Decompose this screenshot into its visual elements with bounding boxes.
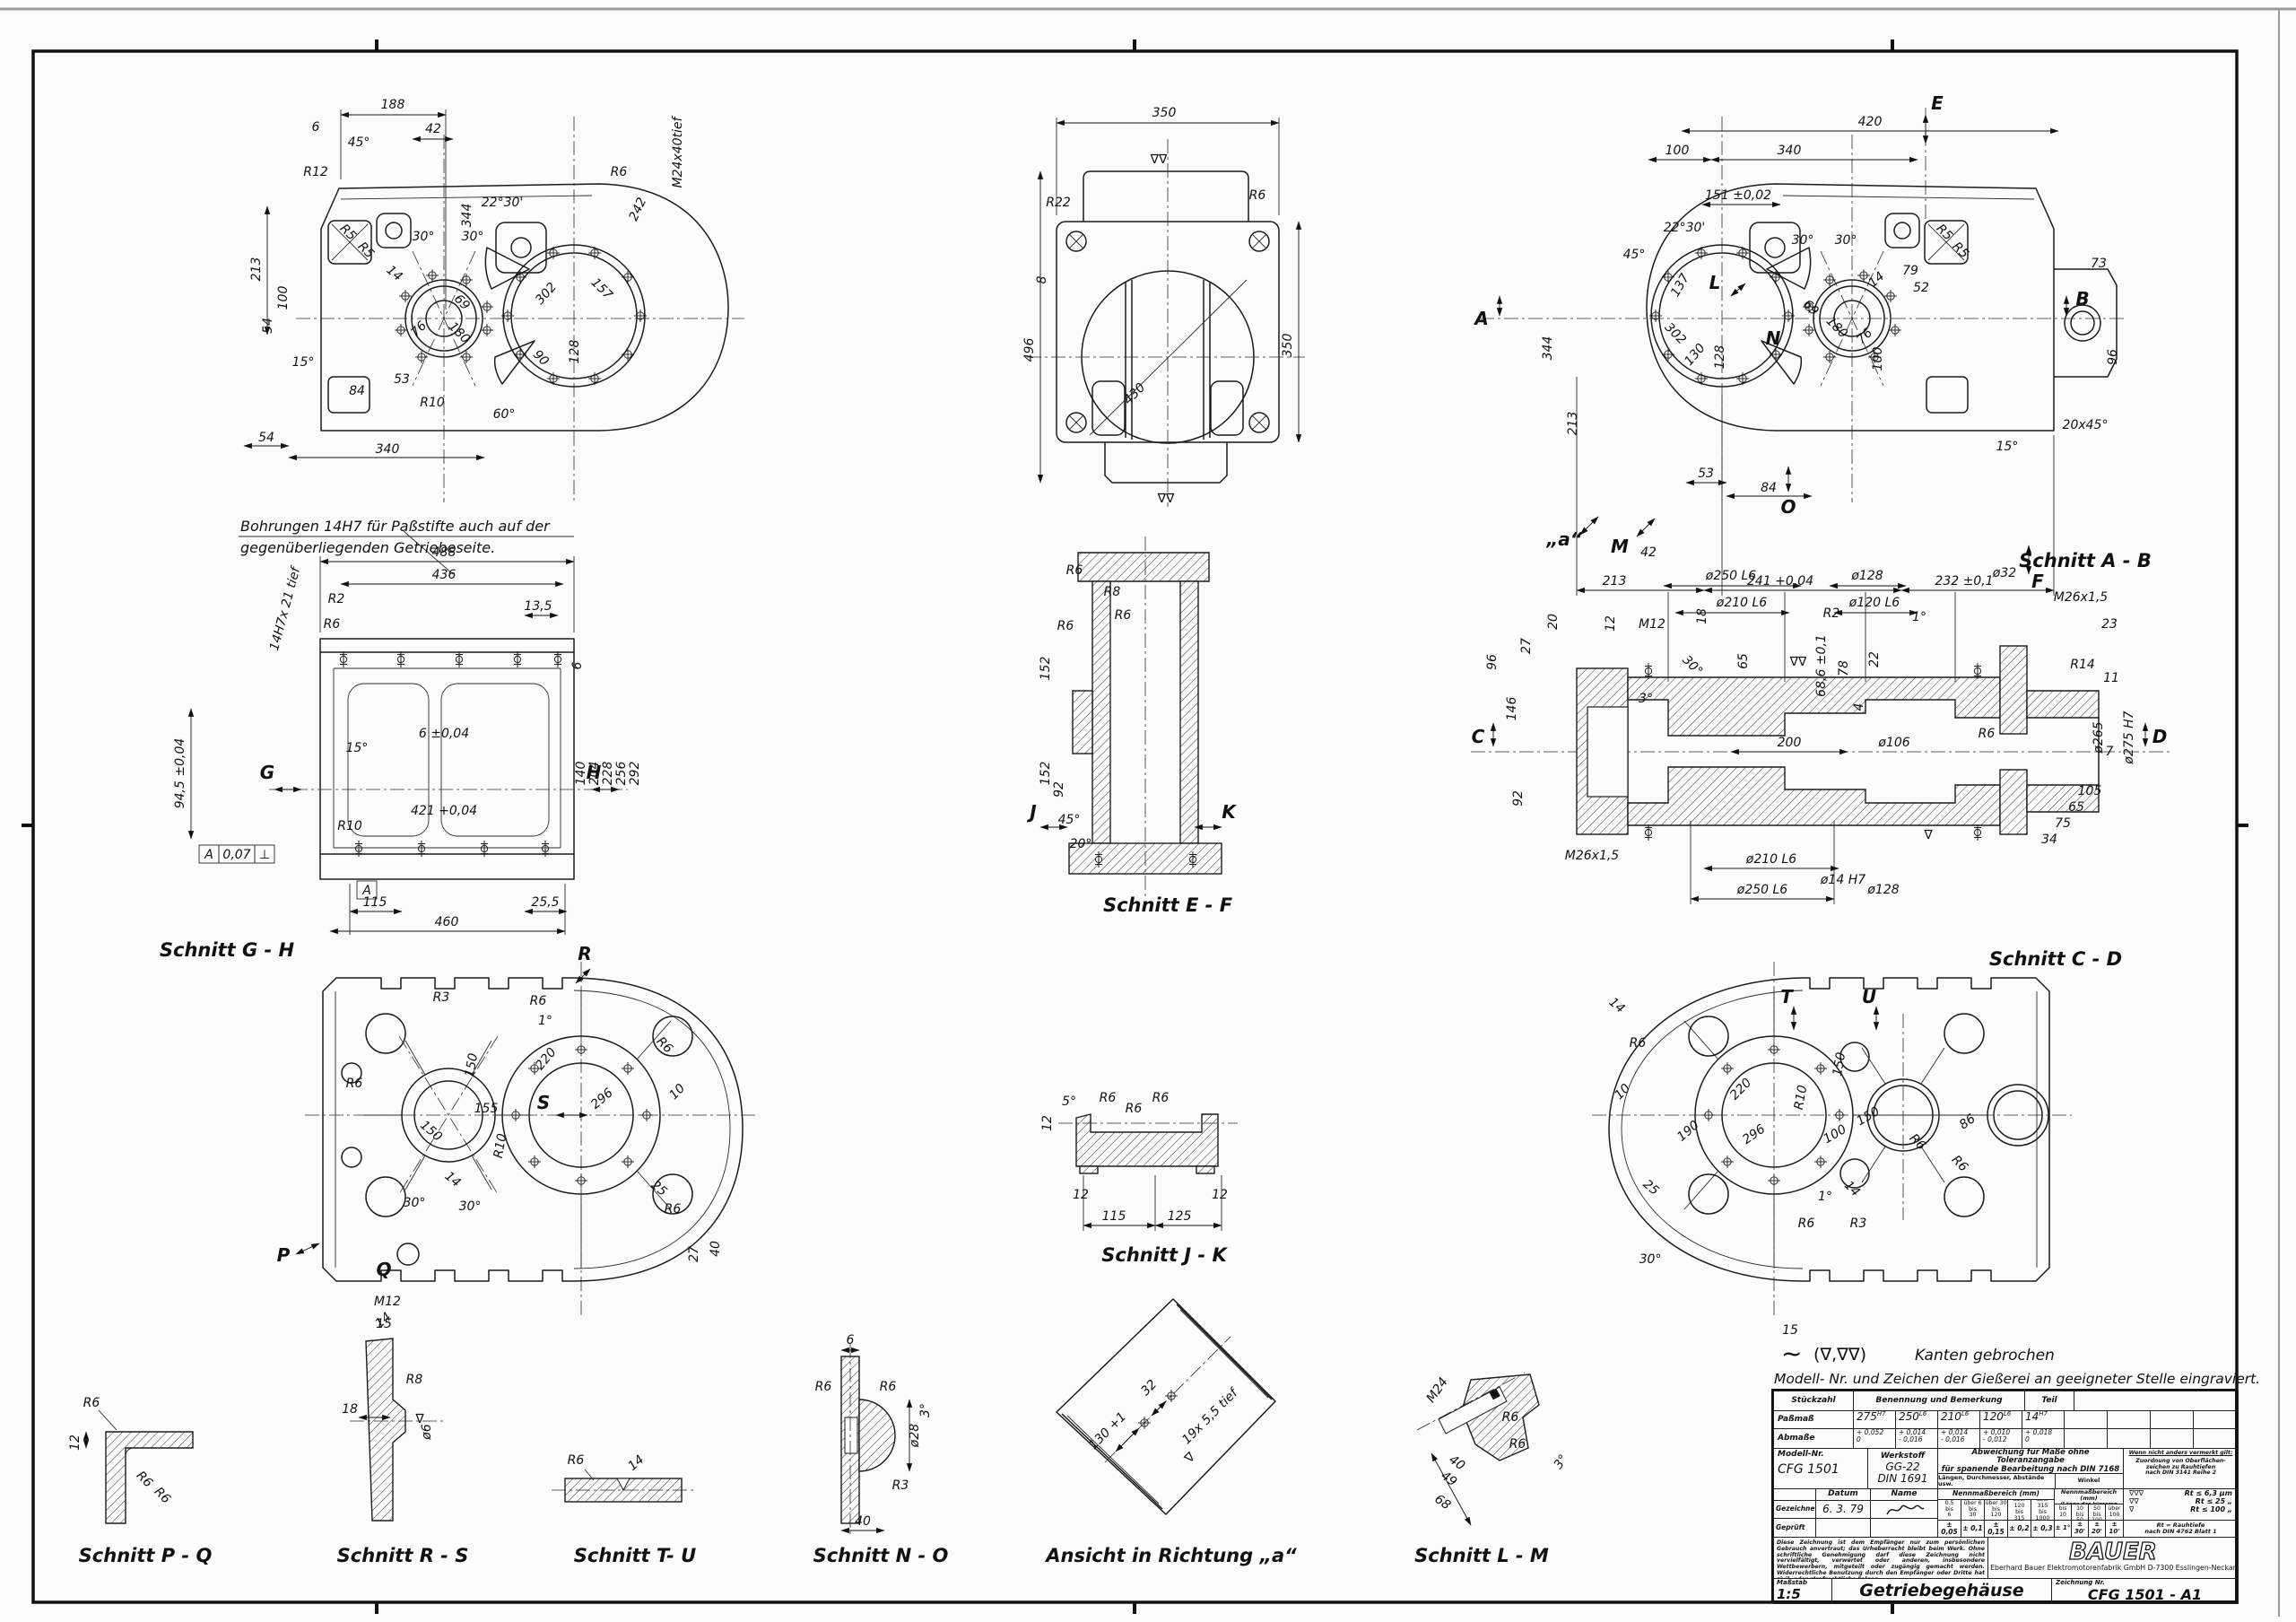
dim-label: R6	[152, 1485, 174, 1507]
section-letter-C: C	[1472, 726, 1485, 747]
dim-label: 130	[1682, 341, 1708, 369]
dim-label: 3°	[918, 1403, 933, 1417]
dim-label: 12	[1212, 1188, 1228, 1202]
section-letter-B: B	[2075, 288, 2089, 310]
dim-label: R6	[611, 165, 628, 179]
dim-label: 30°	[1792, 233, 1814, 248]
ang-header1: Nennmaßbereich (mm)	[2055, 1489, 2123, 1502]
dim-label: 30°	[459, 1199, 482, 1214]
dim-label: 18	[1695, 608, 1709, 624]
surface-mark: ∇∇	[1157, 492, 1175, 506]
dim-label: R6	[1057, 619, 1074, 633]
fit-tol: L6	[2004, 1410, 2011, 1417]
dim-label: R14	[2070, 658, 2095, 672]
dim-label: 100	[1665, 144, 1690, 158]
ang-tol: ± 10'	[2105, 1520, 2124, 1538]
massstab-cell: Maßstab 1:5	[1773, 1578, 1832, 1604]
dim-label: M26x1,5	[2054, 590, 2109, 605]
dim-label: 94,5 ±0,04	[173, 738, 187, 809]
dim-label: R3	[892, 1478, 909, 1493]
dim-label: 30°	[413, 230, 435, 244]
dim-label: R22	[1046, 196, 1071, 210]
dim-label: 6 ±0,04	[419, 727, 469, 741]
dim-label: 30°	[462, 230, 484, 244]
dim-label: R5	[1934, 222, 1956, 244]
gezeichnet-label: Gezeichnet	[1773, 1500, 1816, 1519]
tolerance-value: 0,07	[222, 848, 250, 862]
section-letter-P: P	[277, 1244, 291, 1266]
dim-label: 3°	[1639, 692, 1653, 706]
benennung-header: Benennung und Bemerkung	[1853, 1391, 2025, 1411]
view-end: 350 496 350 430 R22 R6 8 ∇∇ ∇∇	[1022, 106, 1305, 507]
empty-cell	[2193, 1428, 2239, 1449]
dim-label: ø250 L6	[1736, 883, 1788, 897]
dim-label: 15°	[292, 355, 315, 370]
detail-no: 6 R6 R6 ø28 3° R3 40	[815, 1333, 933, 1536]
dim-label: ø265	[2092, 721, 2106, 754]
passmass-value: 250L6	[1895, 1410, 1938, 1429]
dim-label: 125	[1168, 1209, 1192, 1224]
dim-label: 7	[2106, 745, 2114, 759]
len-range: über 6 bis 30	[1961, 1499, 1985, 1521]
modell-number: CFG 1501	[1778, 1463, 1864, 1477]
dim-label: 242	[626, 196, 649, 223]
nennmass-ang-header: Nennmaßbereich (mm) (Länge des kürzeren …	[2054, 1488, 2124, 1504]
dim-label: 100	[1871, 347, 1885, 371]
dim-label: 115	[1102, 1209, 1126, 1224]
section-letter-J: J	[1026, 801, 1037, 823]
dim-label: R6	[1798, 1216, 1815, 1231]
surface-note-cell: Wenn nicht anders vermerkt gilt: Zuordnu…	[2123, 1448, 2239, 1489]
gezeichnet-date: 6. 3. 79	[1815, 1500, 1871, 1519]
empty-cell	[1773, 1488, 1816, 1501]
dim-label: 10	[666, 1081, 688, 1103]
dim-label: 100	[276, 286, 291, 310]
dim-label: R6	[1115, 608, 1132, 623]
dim-label: 92	[1511, 790, 1526, 807]
dim-label: 53	[1698, 467, 1714, 481]
label-schnitt-tu: Schnitt T- U	[574, 1545, 696, 1566]
dim-label: R10	[337, 819, 362, 833]
dim-label: R6	[1249, 188, 1266, 203]
dim-label: 45°	[348, 135, 370, 150]
signature	[1882, 1502, 1926, 1518]
ang-tol: ± 30'	[2071, 1520, 2089, 1538]
len-tol: ± 0,15	[1984, 1520, 2008, 1538]
logo-cell: BAUER Eberhard Bauer Elektromotorenfabri…	[1987, 1537, 2239, 1579]
dim-label: M24	[1424, 1375, 1451, 1406]
dim-label: 128	[1713, 345, 1727, 370]
drawing-number: CFG 1501 - A1	[2056, 1587, 2234, 1603]
dim-label: ø28	[908, 1424, 922, 1448]
abmasse-value: + 0,010- 0,012	[1979, 1428, 2022, 1449]
dim-label: R6	[530, 994, 547, 1008]
dim-label: R6	[1949, 1153, 1971, 1175]
dim-label: 4	[1852, 703, 1866, 711]
dim-label: 54	[261, 318, 275, 334]
label-schnitt-lm: Schnitt L - M	[1414, 1545, 1549, 1566]
dim-label: 78	[1837, 660, 1851, 676]
dim-label: 25,5	[531, 895, 559, 910]
dim-label: 12	[1073, 1188, 1089, 1202]
view-section-gh: R3 R6 1° 150 155 150 14 30° 30° R10 220 …	[277, 943, 758, 1331]
surface-mark: ∇	[1923, 828, 1933, 842]
dim-label: 25	[648, 1178, 670, 1199]
dim-label: 350	[1281, 334, 1295, 358]
dim-label: 65	[1736, 653, 1751, 669]
dim-label: M24x40tief	[671, 115, 685, 187]
fit-value: 210	[1941, 1410, 1961, 1423]
dim-label: ø120 L6	[1848, 596, 1900, 610]
dim-label: 228	[601, 762, 615, 786]
dim-label: 14	[1841, 1178, 1863, 1199]
werkstoff-value: GG-22	[1885, 1461, 1919, 1473]
dim-label: 344	[1541, 336, 1555, 361]
fit-tol: L6	[1919, 1410, 1926, 1417]
stueckzahl-header: Stückzahl	[1773, 1391, 1854, 1411]
surface-mark: ∇	[1181, 1450, 1198, 1467]
empty-cell	[2150, 1410, 2194, 1429]
dim-label: 13,5	[524, 599, 552, 614]
tilde-symbol: ~	[1781, 1339, 1802, 1368]
bauer-logo: BAUER	[1988, 1538, 2238, 1565]
dim-label: R2	[328, 592, 345, 606]
title-block: Stückzahl Benennung und Bemerkung Teil P…	[1771, 1389, 2237, 1602]
fit-tol: H7	[2039, 1410, 2048, 1417]
dim-label: R6	[665, 1202, 682, 1216]
dim-label: 14	[1865, 269, 1887, 291]
dim-label: 232 ±0,1	[1935, 574, 1993, 589]
ang-range: über 100	[2105, 1504, 2124, 1521]
dim-label: 22	[1867, 651, 1882, 667]
dim-label: 460	[435, 915, 459, 929]
empty-cell	[2193, 1410, 2239, 1429]
section-letter-G: G	[260, 762, 274, 783]
dim-label: 350	[1152, 106, 1177, 120]
fit-value: 120	[1983, 1410, 2004, 1423]
passmass-value: 14H7	[2022, 1410, 2065, 1429]
dim-label: 15°	[346, 741, 369, 755]
dim-label: R6	[1630, 1036, 1647, 1051]
tol-lower: 0	[1857, 1436, 1895, 1443]
dim-label: 27	[1519, 638, 1534, 654]
tol-lower: 0	[2025, 1436, 2064, 1443]
dim-label: R6	[83, 1396, 100, 1410]
dim-label: 14	[442, 1169, 464, 1190]
section-letter-S: S	[537, 1092, 550, 1113]
dim-label: R6	[815, 1380, 832, 1394]
name-header: Name	[1870, 1488, 1938, 1501]
dim-label: R6	[654, 1034, 676, 1057]
dim-label: 65	[2068, 800, 2084, 815]
fit-value: 250	[1899, 1410, 1919, 1423]
dim-label: 188	[381, 98, 405, 112]
general-notes: ~ (∇,∇∇) Kanten gebrochen Modell- Nr. un…	[1774, 1339, 2260, 1387]
dim-label: R6	[1100, 1091, 1117, 1105]
surface-symbols: (∇,∇∇)	[1813, 1345, 1866, 1365]
dim-label: R6	[1066, 563, 1083, 578]
tol-upper: + 0,018	[2025, 1429, 2064, 1436]
datum-header: Datum	[1815, 1488, 1871, 1501]
section-letter-D: D	[2152, 726, 2168, 747]
dim-label: 79	[1902, 264, 1918, 278]
dim-label: 25	[1640, 1177, 1662, 1199]
dim-label: 11	[2103, 671, 2119, 685]
dim-label: 60°	[493, 407, 516, 422]
label-schnitt-jk: Schnitt J - K	[1101, 1244, 1228, 1266]
ang-range: über 10 bis 50	[2071, 1504, 2089, 1521]
drawing-sheet: 188 6 45° 42 213 344 242 M24x40tief 30° …	[0, 0, 2296, 1622]
dim-label: 68,6 ±0,1	[1814, 634, 1829, 697]
section-letter-H: H	[587, 762, 602, 783]
section-letter-T: T	[1780, 986, 1794, 1007]
empty-cell	[2064, 1410, 2108, 1429]
dim-label: R6	[568, 1453, 585, 1468]
rt-value: Rt ≤ 100 „	[2190, 1506, 2232, 1514]
datum-ref: A	[204, 848, 213, 862]
passmass-value: 210L6	[1937, 1410, 1980, 1429]
passmass-label: Paßmaß	[1773, 1410, 1854, 1429]
dim-label: 302	[533, 280, 560, 308]
dim-label: 42	[425, 122, 441, 136]
dim-label: 340	[1778, 144, 1802, 158]
dim-label: 256	[614, 762, 629, 786]
teil-header: Teil	[2024, 1391, 2074, 1411]
empty-cell	[2074, 1391, 2239, 1411]
dim-label: R6	[134, 1469, 156, 1491]
label-ansicht-a: Ansicht in Richtung „a“	[1044, 1545, 1297, 1566]
legal-text: Diese Zeichnung ist dem Empfänger nur zu…	[1773, 1537, 1988, 1579]
dim-label: 34	[2041, 833, 2057, 847]
dim-label: 6	[570, 661, 585, 669]
dim-label: 150	[463, 1052, 481, 1078]
dowel-note-line2: gegenüberliegenden Getriebeseite.	[240, 539, 495, 556]
fit-tol: L6	[1961, 1410, 1969, 1417]
dim-label: 130 +1	[1086, 1409, 1129, 1452]
fit-value: 275	[1857, 1410, 1877, 1423]
massstab-value: 1:5	[1777, 1587, 1829, 1602]
section-letter-A: A	[1473, 308, 1488, 329]
len-range: über 315 bis 1000	[2031, 1499, 2055, 1521]
tol-upper: + 0,052	[1857, 1429, 1895, 1436]
dim-label: 84	[1761, 481, 1777, 495]
dim-label: 30°	[1835, 233, 1857, 248]
dim-label: R10	[491, 1132, 510, 1159]
dim-label: 420	[1858, 115, 1883, 129]
dim-label: R6	[1126, 1102, 1143, 1116]
dim-label: 30°	[404, 1196, 426, 1210]
dim-label: 86	[1957, 1112, 1979, 1132]
dim-label: 1°	[1912, 610, 1926, 624]
dim-label: 496	[1022, 338, 1037, 362]
view-front: 488 436 13,5 R2 14H7x 21 tief 94,5 ±0,04…	[173, 545, 642, 935]
laengen-header: Längen, Durchmesser, Abstände usw.	[1938, 1473, 2056, 1488]
dim-label: ø128	[1850, 569, 1883, 583]
empty-cell	[2107, 1410, 2151, 1429]
dim-label: 20	[1546, 614, 1561, 630]
modell-cell: Modell-Nr. CFG 1501	[1773, 1448, 1868, 1489]
surface-mark: ∇∇	[1150, 153, 1168, 167]
dim-label: 30°	[1639, 1252, 1662, 1267]
kanten-note: Kanten gebrochen	[1915, 1347, 2055, 1365]
dim-label: ø210 L6	[1716, 596, 1768, 610]
dim-label: 436	[432, 568, 457, 582]
label-schnitt-ab: Schnitt A - B	[2019, 550, 2152, 571]
dim-label: R3	[433, 990, 450, 1005]
dim-label: ø210 L6	[1745, 852, 1797, 867]
view-plan-left: 188 6 45° 42 213 344 242 M24x40tief 30° …	[239, 98, 744, 574]
brand-name: BAUER	[2069, 1539, 2157, 1565]
dim-label: 15°	[1996, 440, 2019, 454]
wenn-note: Wenn nicht anders vermerkt gilt:	[2126, 1451, 2236, 1457]
dim-label: 54	[258, 431, 274, 445]
drawing-title: Getriebegehäuse	[1831, 1578, 2052, 1604]
dim-label: 14	[384, 263, 405, 284]
dim-label: 6	[312, 120, 320, 135]
abmasse-value: + 0,0520	[1853, 1428, 1896, 1449]
dim-label: R6	[324, 617, 341, 632]
label-schnitt-no: Schnitt N - O	[813, 1545, 949, 1566]
dim-label: 12	[1604, 615, 1618, 632]
dim-label: 14	[1606, 995, 1628, 1016]
len-range: über 30 bis 120	[1984, 1499, 2008, 1521]
view-direction-a: 130 +1 32 19x 5,5 tief ∇	[1057, 1299, 1275, 1514]
dim-label: 30°	[1679, 653, 1705, 679]
dim-label: 42	[1640, 545, 1657, 560]
dim-label: 3°	[1552, 1452, 1571, 1472]
detail-pq: 12 R6 R6 R6	[68, 1396, 193, 1523]
surface-mark: ∇∇	[1789, 655, 1807, 669]
dim-label: 40	[709, 1241, 723, 1257]
dim-label: ø32	[1992, 566, 2016, 580]
dim-label: 150	[1831, 1051, 1848, 1077]
dim-label: 96	[2106, 349, 2120, 365]
dim-label: 40	[855, 1514, 871, 1529]
dim-label: 75	[2055, 816, 2071, 831]
dim-label: 23	[2101, 617, 2118, 632]
dim-label: ø14 H7	[1820, 873, 1865, 887]
dim-label: M26x1,5	[1565, 849, 1620, 863]
dim-label: 1°	[538, 1014, 552, 1028]
label-schnitt-cd: Schnitt C - D	[1989, 948, 2122, 970]
winkel-header: Winkel	[2055, 1473, 2123, 1488]
dim-label: 8	[1035, 275, 1049, 283]
section-letter-N: N	[1766, 327, 1781, 349]
len-tol: ± 0,1	[1961, 1520, 1985, 1538]
dim-label: 92	[1052, 781, 1066, 798]
dim-label: 52	[1913, 281, 1929, 295]
dim-label: R10	[1792, 1084, 1811, 1111]
geprueft-date	[1815, 1518, 1871, 1538]
modell-label: Modell-Nr.	[1778, 1451, 1864, 1460]
dim-label: R2	[1823, 606, 1840, 621]
dim-label: 5°	[1062, 1094, 1076, 1109]
drawing-art: 188 6 45° 42 213 344 242 M24x40tief 30° …	[0, 0, 2296, 1622]
section-letter-M: M	[1611, 536, 1629, 557]
dim-label: 45°	[1623, 248, 1646, 262]
label-schnitt-ef: Schnitt E - F	[1103, 894, 1233, 916]
len-tol: ± 0,3	[2031, 1520, 2055, 1538]
ang-range: über 50 bis 100	[2088, 1504, 2106, 1521]
ang-tol: ± 20'	[2088, 1520, 2106, 1538]
dim-label: R6	[1502, 1410, 1519, 1425]
abweichung-line1: Abweichung für Maße ohne Toleranzangabe	[1938, 1449, 2123, 1466]
dim-label: 488	[432, 545, 457, 560]
dim-label: 14H7x 21 tief	[267, 564, 304, 652]
dim-label: 152	[1039, 657, 1053, 681]
dim-label: 344	[460, 204, 474, 228]
company-line: Eberhard Bauer Elektromotorenfabrik GmbH…	[1988, 1565, 2238, 1573]
dim-label: 296	[1740, 1121, 1768, 1147]
datum-flag: A	[361, 884, 371, 898]
rt-note: Rt = Rauhtiefe nach DIN 4762 Blatt 1	[2123, 1520, 2239, 1538]
section-letter-L: L	[1709, 272, 1721, 293]
len-range: 0,5 bis 6	[1937, 1499, 1961, 1521]
view-letter-a: „a“	[1545, 528, 1582, 550]
dim-label: R6	[880, 1380, 897, 1394]
view-plan-right: 420 100 340 151 ±0,02 22°30' 45° 30° 30°…	[1473, 92, 2126, 596]
signature-cell	[1870, 1500, 1938, 1519]
len-range: über 120 bis 315	[2007, 1499, 2031, 1521]
section-letter-K: K	[1222, 801, 1237, 823]
dim-label: 296	[588, 1086, 616, 1112]
abmasse-value: + 0,014- 0,016	[1895, 1428, 1938, 1449]
dim-label: 18	[342, 1402, 358, 1417]
ang-range: bis 10	[2054, 1504, 2072, 1521]
label-schnitt-gh: Schnitt G - H	[160, 939, 295, 961]
empty-cell	[2150, 1428, 2194, 1449]
section-letter-E: E	[1931, 92, 1944, 114]
label-schnitt-rs: Schnitt R - S	[337, 1545, 469, 1566]
dim-label: R6	[346, 1077, 363, 1091]
dim-label: 151 ±0,02	[1705, 188, 1771, 203]
geprueft-name	[1870, 1518, 1938, 1538]
passmass-value: 275H7	[1853, 1410, 1896, 1429]
dim-label: 14	[625, 1452, 647, 1474]
dim-label: 84	[349, 384, 365, 398]
detail-rs: 18 R8 ø6 14 ∇	[342, 1310, 444, 1521]
view-section-cd: 14 R6 10 25 190 296 220 150 150 100 86 R…	[1592, 962, 2072, 1338]
dim-label: 1°	[1818, 1190, 1832, 1204]
perpendicularity-symbol: ⊥	[259, 848, 270, 862]
dim-label: R8	[406, 1373, 423, 1387]
dim-label: 105	[2078, 784, 2102, 798]
view-section-jk: 12 5° R6 R6 R6 12 115 125 12	[1040, 1091, 1238, 1231]
dim-label: 90	[530, 347, 552, 369]
len-tol: ± 0,05	[1937, 1520, 1961, 1538]
label-schnitt-pq: Schnitt P - Q	[79, 1545, 213, 1566]
dim-label: ø275 H7	[2122, 711, 2136, 764]
empty-cell	[2064, 1428, 2108, 1449]
view-section-ef: R6 R8 R6 R6 152 152 45° 20° 92 J K	[1026, 536, 1237, 897]
dim-label: 190	[1674, 1118, 1702, 1144]
dim-label: 213	[1603, 574, 1627, 589]
dim-label: 340	[376, 442, 400, 457]
dim-label: 68	[1431, 1492, 1453, 1513]
dim-label: 421 +0,04	[411, 804, 477, 818]
dim-label: M12	[1639, 617, 1665, 632]
dim-label: R10	[420, 396, 445, 410]
dim-label: 213	[249, 257, 264, 282]
dim-label: ø250 L6	[1705, 569, 1757, 583]
view-section-ab: ø250 L6 ø210 L6 ø128 ø120 L6 ø32 M26x1,5…	[1471, 566, 2170, 904]
fit-value: 14	[2025, 1410, 2039, 1423]
abmasse-value: + 0,0180	[2022, 1428, 2065, 1449]
detail-lm: M24 R6 R6 40 49 68 3°	[1417, 1373, 1571, 1525]
drawing-number-cell: Zeichnung Nr. CFG 1501 - A1	[2051, 1578, 2239, 1604]
abmasse-label: Abmaße	[1773, 1428, 1854, 1449]
section-letter-U: U	[1862, 986, 1876, 1007]
